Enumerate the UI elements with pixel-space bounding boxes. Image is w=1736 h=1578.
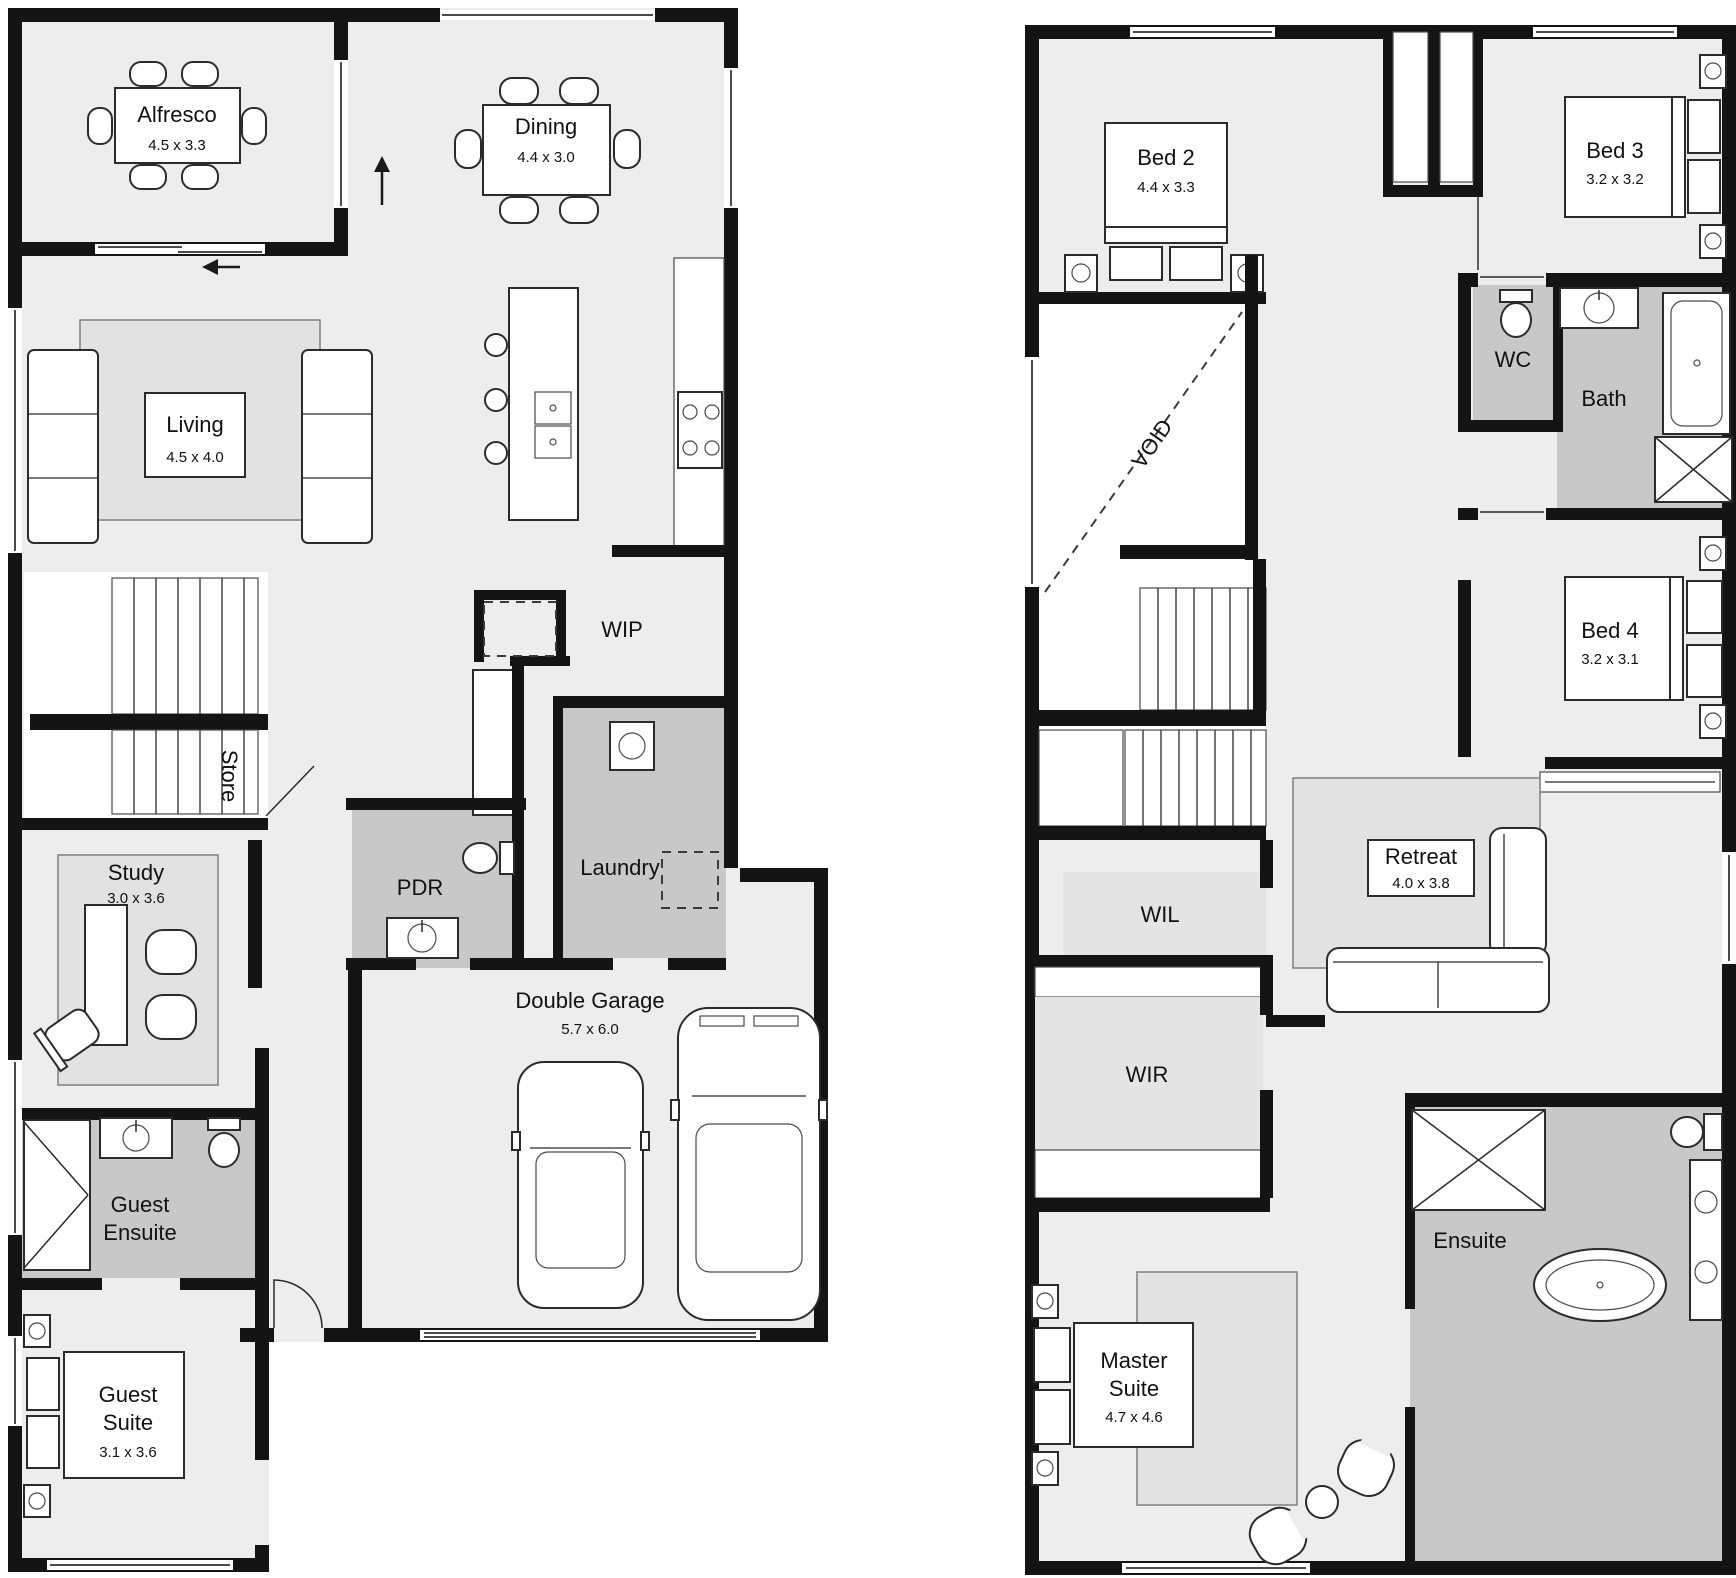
chair	[146, 930, 196, 974]
wall	[1383, 25, 1393, 193]
sink-icon	[619, 733, 645, 759]
room-label: Suite	[103, 1410, 153, 1435]
room-label: Bath	[1581, 386, 1626, 411]
car-roof	[696, 1124, 802, 1272]
wall	[474, 594, 484, 662]
room-label: Laundry	[580, 855, 660, 880]
garage-door	[420, 1330, 760, 1340]
wall	[22, 818, 268, 830]
bed-drawer	[1170, 247, 1222, 280]
toilet-icon	[209, 1133, 239, 1167]
chair	[614, 130, 640, 168]
room-label: Retreat	[1385, 844, 1457, 869]
chair	[130, 165, 166, 189]
chair	[560, 78, 598, 104]
first-floor-plan: Bed 2 4.4 x 3.3 Bed 3 3.2 x 3.2	[1025, 25, 1736, 1575]
stair-flight	[1140, 588, 1266, 710]
toilet-tank	[208, 1118, 240, 1130]
room-label: WIP	[601, 617, 643, 642]
stool	[485, 334, 507, 356]
stool	[485, 442, 507, 464]
lamp-icon	[1037, 1293, 1053, 1309]
stair-landing	[1039, 730, 1123, 826]
room-dims: 4.0 x 3.8	[1392, 875, 1450, 892]
room-label: WIL	[1140, 902, 1179, 927]
sofa-chaise	[1490, 828, 1546, 956]
pillow	[1034, 1390, 1070, 1444]
room-dims: 3.2 x 3.2	[1586, 171, 1644, 188]
room-label: Suite	[1109, 1376, 1159, 1401]
void-open-area	[1039, 304, 1245, 560]
lamp-icon	[1072, 264, 1090, 282]
stair-rail	[30, 714, 268, 730]
shower	[24, 1120, 90, 1270]
wall	[1458, 580, 1471, 757]
chair	[560, 197, 598, 223]
lamp-icon	[1705, 63, 1721, 79]
cooktop	[678, 392, 722, 468]
wall	[612, 545, 738, 557]
wall	[1245, 255, 1258, 560]
chair	[455, 130, 481, 168]
wall	[1025, 292, 1266, 304]
bed-headboard	[1105, 227, 1227, 243]
wall	[556, 594, 566, 666]
chair	[242, 108, 266, 144]
pillow	[27, 1416, 59, 1468]
wall	[1458, 273, 1471, 432]
room-dims: 3.2 x 3.1	[1581, 651, 1639, 668]
wall	[553, 958, 613, 970]
bed-headboard	[1672, 97, 1685, 217]
wall	[1028, 1198, 1270, 1212]
room-label: Bed 3	[1586, 138, 1644, 163]
room-label: Master	[1100, 1348, 1167, 1373]
sofa	[302, 350, 372, 543]
wall	[348, 8, 440, 22]
bed-drawer	[1687, 645, 1722, 697]
chair	[500, 197, 538, 223]
stool	[485, 389, 507, 411]
floorplan-drawing: Alfresco 4.5 x 3.3 Dining 4.4 x 3.0 Livi…	[0, 0, 1736, 1578]
wall	[22, 1278, 102, 1290]
car-grille	[754, 1016, 798, 1026]
chair	[500, 78, 538, 104]
room-dims: 4.4 x 3.0	[517, 149, 575, 166]
closet-door	[1440, 32, 1473, 182]
ground-floor-plan: Alfresco 4.5 x 3.3 Dining 4.4 x 3.0 Livi…	[8, 8, 828, 1572]
toilet-tank	[500, 842, 514, 874]
wall	[1260, 1090, 1273, 1198]
car-mirror	[512, 1132, 520, 1150]
wall	[1546, 273, 1736, 287]
floorplan-page: Alfresco 4.5 x 3.3 Dining 4.4 x 3.0 Livi…	[0, 0, 1736, 1578]
car-mirror	[671, 1100, 679, 1120]
lamp-icon	[1037, 1460, 1053, 1476]
room-label: Bed 2	[1137, 145, 1195, 170]
pillow	[27, 1358, 59, 1410]
lamp-icon	[1705, 545, 1721, 561]
wall	[1471, 420, 1561, 432]
bed-headboard	[1670, 577, 1683, 700]
bed-drawer	[1688, 160, 1720, 213]
toilet-icon	[463, 843, 497, 873]
toilet-tank	[1500, 290, 1532, 302]
room-dims: 5.7 x 6.0	[561, 1021, 619, 1038]
room-label: WIR	[1126, 1062, 1169, 1087]
wall	[324, 1328, 348, 1342]
toilet-tank	[1704, 1114, 1722, 1150]
lamp-icon	[29, 1323, 45, 1339]
room-label: Living	[166, 412, 223, 437]
room-dims: 3.1 x 3.6	[99, 1444, 157, 1461]
robe-shelving	[1035, 967, 1263, 997]
chair	[182, 62, 218, 86]
wall	[1546, 508, 1736, 520]
chair	[182, 165, 218, 189]
wall	[553, 696, 563, 970]
drain-icon	[1597, 1282, 1603, 1288]
bed-drawer	[1110, 247, 1162, 280]
wall	[1266, 1015, 1325, 1027]
wall	[1120, 545, 1258, 559]
bed-drawer	[1687, 581, 1722, 633]
room-label: Ensuite	[1433, 1228, 1506, 1253]
bed-drawer	[1688, 100, 1720, 153]
car	[671, 1008, 827, 1320]
staircase: Store	[24, 572, 268, 818]
wall	[1028, 955, 1266, 967]
room-label: Dining	[515, 114, 577, 139]
wall	[348, 958, 362, 1342]
wall	[1035, 826, 1266, 840]
wall	[1428, 25, 1440, 193]
room-label: Guest	[99, 1382, 158, 1407]
wall	[724, 8, 738, 68]
retreat-setting	[1293, 778, 1549, 1012]
toilet-icon	[1671, 1117, 1703, 1147]
room-dims: 4.4 x 3.3	[1137, 179, 1195, 196]
chair	[88, 108, 112, 144]
wall	[474, 590, 566, 600]
basin-icon	[1695, 1261, 1717, 1283]
room-dims: 3.0 x 3.6	[107, 890, 165, 907]
drain-icon	[1694, 360, 1700, 366]
wall	[1260, 840, 1273, 888]
pillow	[1034, 1328, 1070, 1382]
wall	[1383, 185, 1483, 197]
lamp-icon	[29, 1493, 45, 1509]
wall	[724, 208, 738, 868]
car-mirror	[641, 1132, 649, 1150]
wall	[668, 958, 726, 970]
room-label: Bed 4	[1581, 618, 1639, 643]
room-dims: 4.5 x 4.0	[166, 449, 224, 466]
room-label: Study	[108, 860, 164, 885]
wall	[1405, 1093, 1736, 1107]
robe-shelving	[1035, 1150, 1263, 1198]
wall	[240, 1328, 274, 1342]
wall	[1260, 955, 1273, 1015]
lamp-icon	[1705, 713, 1721, 729]
wall	[553, 696, 738, 708]
stair-rail	[1039, 710, 1266, 726]
wall	[8, 8, 346, 22]
room-label: Ensuite	[103, 1220, 176, 1245]
room-label: Store	[217, 750, 242, 803]
car-mirror	[819, 1100, 827, 1120]
wall	[1253, 559, 1266, 714]
wall	[346, 798, 526, 810]
wall	[255, 1048, 269, 1460]
room-label: WC	[1495, 347, 1532, 372]
wall	[470, 958, 553, 970]
wc-fixtures	[1500, 290, 1532, 337]
room-label: PDR	[397, 875, 443, 900]
wall	[1545, 757, 1736, 769]
wall	[248, 840, 262, 988]
room-dims: 4.7 x 4.6	[1105, 1409, 1163, 1426]
room-label: Double Garage	[515, 988, 664, 1013]
sofa	[28, 350, 98, 543]
chair	[130, 62, 166, 86]
side-table	[1306, 1486, 1338, 1518]
wall	[334, 8, 348, 60]
car-grille	[700, 1016, 744, 1026]
vanity	[1690, 1160, 1722, 1320]
wall	[512, 666, 524, 968]
car-roof	[536, 1152, 625, 1268]
pantry-cabinet	[473, 670, 513, 815]
wall	[1473, 25, 1483, 193]
chair	[146, 995, 196, 1039]
room-dims: 4.5 x 3.3	[148, 137, 206, 154]
basin-icon	[1695, 1191, 1717, 1213]
closet-door	[1393, 32, 1428, 182]
wall	[1405, 1407, 1415, 1575]
toilet-icon	[1501, 303, 1531, 337]
stair-flight	[1125, 730, 1266, 826]
wall	[1458, 508, 1478, 520]
car	[512, 1062, 649, 1308]
lamp-icon	[1705, 233, 1721, 249]
room-label: Guest	[111, 1192, 170, 1217]
room-label: Alfresco	[137, 102, 216, 127]
